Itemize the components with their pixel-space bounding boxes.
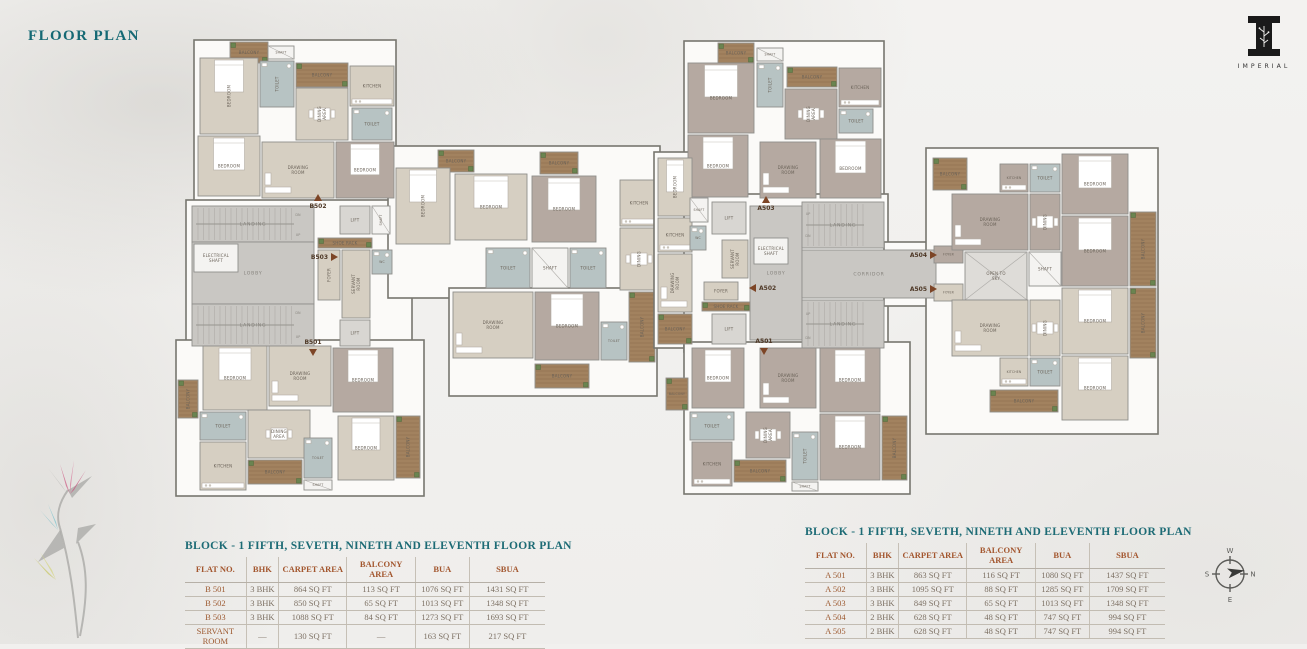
table-cell: —: [246, 625, 278, 649]
room-landing: LANDING: [802, 300, 884, 348]
room-drawing-room: DRAWINGROOM: [658, 254, 692, 312]
svg-text:LIFT: LIFT: [725, 215, 734, 220]
svg-text:TOILET: TOILET: [1036, 175, 1053, 180]
svg-text:SHOE RACK: SHOE RACK: [714, 304, 739, 309]
svg-text:TOILET: TOILET: [579, 265, 596, 270]
table-cell: B 501: [185, 583, 246, 597]
room-drawing-room: DRAWINGROOM: [952, 300, 1028, 356]
svg-text:FOYER: FOYER: [714, 288, 728, 293]
table-cell: 3 BHK: [246, 597, 278, 611]
room-kitchen: KITCHEN: [620, 180, 658, 226]
table-cell: 1285 SQ FT: [1035, 583, 1089, 597]
room-bedroom: BEDROOM: [535, 292, 599, 360]
svg-text:SHOE RACK: SHOE RACK: [333, 240, 358, 245]
svg-text:BEDROOM: BEDROOM: [1084, 318, 1107, 323]
table-cell: 1080 SQ FT: [1035, 569, 1089, 583]
table-header-cell: BHK: [246, 557, 278, 583]
room-bedroom: BEDROOM: [333, 348, 393, 412]
compass-s: S: [1205, 571, 1210, 579]
svg-text:DININGAREA: DININGAREA: [806, 106, 816, 122]
svg-text:BEDROOM: BEDROOM: [1084, 248, 1107, 253]
svg-text:B501: B501: [304, 339, 321, 346]
room-electrical-shaft: ELECTRICALSHAFT: [194, 244, 238, 272]
svg-text:KITCHEN: KITCHEN: [214, 463, 233, 468]
room-toilet: TOILET: [601, 322, 627, 360]
svg-text:DINING: DINING: [1042, 214, 1047, 230]
room-balcony: BALCONY: [248, 460, 302, 484]
svg-text:B503: B503: [311, 254, 328, 261]
room-bedroom: BEDROOM: [692, 348, 744, 408]
svg-text:LANDING: LANDING: [830, 223, 857, 229]
svg-text:TOILET: TOILET: [214, 423, 231, 428]
tower-a-table-title: BLOCK - 1 FIFTH, SEVETH, NINETH AND ELEV…: [805, 526, 1165, 538]
room-kitchen: KITCHEN: [839, 68, 881, 107]
room-balcony: BALCONY: [882, 416, 907, 480]
room-bedroom: BEDROOM: [203, 346, 267, 410]
svg-text:BEDROOM: BEDROOM: [707, 375, 730, 380]
compass: W N S E: [1198, 542, 1262, 611]
svg-text:DININGAREA: DININGAREA: [317, 106, 327, 122]
svg-text:CORRIDOR: CORRIDOR: [853, 272, 884, 278]
svg-text:LOBBY: LOBBY: [244, 271, 263, 277]
room-bedroom: BEDROOM: [688, 135, 748, 197]
table-cell: 2 BHK: [866, 611, 898, 625]
table-header-cell: SBUA: [1089, 543, 1165, 569]
svg-text:UP: UP: [296, 335, 301, 339]
svg-text:BEDROOM: BEDROOM: [672, 176, 677, 199]
table-cell: 88 SQ FT: [967, 583, 1035, 597]
room-shaft: SHAFT: [532, 248, 568, 288]
room-dining-area: DININGAREA: [248, 410, 310, 458]
imperial-logo: IMPERIAL: [1222, 10, 1306, 79]
table-cell: 1348 SQ FT: [1089, 597, 1165, 611]
table-header-cell: BUA: [1035, 543, 1089, 569]
room-shoe-rack: SHOE RACK: [702, 302, 750, 311]
compass-e: E: [1228, 596, 1232, 604]
table-row: B 5023 BHK850 SQ FT65 SQ FT1013 SQ FT134…: [185, 597, 545, 611]
room-toilet: TOILET: [352, 108, 392, 140]
svg-text:BALCONY: BALCONY: [665, 326, 686, 331]
tower-b-area-table: FLAT NO.BHKCARPET AREABALCONY AREABUASBU…: [185, 557, 545, 649]
svg-text:SHAFT: SHAFT: [543, 265, 557, 270]
svg-text:TOILET: TOILET: [703, 423, 720, 428]
table-header-cell: BHK: [866, 543, 898, 569]
table-cell: 849 SQ FT: [899, 597, 967, 611]
room-shaft: SHAFT: [792, 482, 818, 491]
table-cell: 994 SQ FT: [1089, 611, 1165, 625]
table-cell: 163 SQ FT: [415, 625, 469, 649]
svg-text:DN: DN: [295, 311, 301, 315]
room-shaft: SHAFT: [757, 48, 783, 61]
svg-text:DINING: DINING: [1042, 320, 1047, 336]
svg-text:BEDROOM: BEDROOM: [352, 377, 375, 382]
table-header-cell: CARPET AREA: [899, 543, 967, 569]
tower-a-plan: BALCONYBEDROOMSHAFTTOILETBALCONYKITCHEND…: [654, 41, 1158, 494]
svg-text:BEDROOM: BEDROOM: [1084, 181, 1107, 186]
svg-text:BEDROOM: BEDROOM: [839, 166, 862, 171]
room-kitchen: KITCHEN: [1000, 164, 1028, 192]
svg-text:WC: WC: [695, 236, 701, 240]
room-kitchen: KITCHEN: [658, 218, 692, 252]
room-kitchen: KITCHEN: [1000, 358, 1028, 386]
table-row: A 5033 BHK849 SQ FT65 SQ FT1013 SQ FT134…: [805, 597, 1165, 611]
svg-text:LIFT: LIFT: [351, 330, 360, 335]
room-balcony: BALCONY: [296, 63, 348, 87]
room-toilet: TOILET: [304, 438, 332, 478]
svg-text:SHAFT: SHAFT: [312, 483, 323, 487]
room-bedroom: BEDROOM: [820, 414, 880, 480]
room-balcony: BALCONY: [629, 292, 655, 362]
svg-text:TOILET: TOILET: [499, 265, 516, 270]
table-cell: A 505: [805, 625, 866, 639]
table-cell: 48 SQ FT: [967, 625, 1035, 639]
svg-text:TOILET: TOILET: [274, 76, 279, 93]
svg-text:BALCONY: BALCONY: [802, 74, 823, 79]
room-bedroom: BEDROOM: [455, 174, 527, 240]
svg-text:BEDROOM: BEDROOM: [707, 163, 730, 168]
room-bedroom: BEDROOM: [658, 158, 692, 216]
room-kitchen: KITCHEN: [692, 442, 732, 486]
svg-text:BEDROOM: BEDROOM: [710, 95, 733, 100]
room-toilet: TOILET: [1030, 164, 1060, 192]
table-cell: 1693 SQ FT: [469, 611, 545, 625]
room-balcony: BALCONY: [658, 314, 692, 344]
svg-text:BALCONY: BALCONY: [552, 373, 573, 378]
table-cell: 1076 SQ FT: [415, 583, 469, 597]
svg-text:TOILET: TOILET: [847, 118, 864, 123]
table-cell: 1431 SQ FT: [469, 583, 545, 597]
table-cell: B 502: [185, 597, 246, 611]
svg-text:TOILET: TOILET: [767, 77, 772, 94]
room-electrical-shaft: ELECTRICALSHAFT: [754, 238, 788, 264]
svg-text:SHAFT: SHAFT: [799, 485, 810, 489]
svg-text:BALCONY: BALCONY: [1140, 312, 1145, 333]
svg-text:LANDING: LANDING: [240, 323, 267, 329]
table-cell: 1095 SQ FT: [899, 583, 967, 597]
svg-text:BALCONY: BALCONY: [265, 469, 286, 474]
svg-text:BEDROOM: BEDROOM: [420, 195, 425, 218]
room-dining: DINING: [1030, 194, 1060, 250]
room-bedroom: BEDROOM: [1062, 154, 1128, 214]
svg-text:LOBBY: LOBBY: [767, 271, 786, 277]
room-toilet: TOILET: [690, 412, 734, 440]
svg-text:BEDROOM: BEDROOM: [480, 204, 503, 209]
room-drawing-room: DRAWINGROOM: [269, 346, 331, 406]
room-balcony: BALCONY: [933, 158, 967, 190]
svg-text:DN: DN: [805, 234, 811, 238]
svg-text:UP: UP: [296, 233, 301, 237]
svg-text:BALCONY: BALCONY: [312, 72, 333, 77]
room-foyer: FOYER: [934, 284, 963, 301]
table-cell: 3 BHK: [246, 611, 278, 625]
svg-text:LANDING: LANDING: [830, 322, 857, 328]
room-dining: DINING: [1030, 300, 1060, 356]
table-cell: 84 SQ FT: [347, 611, 415, 625]
svg-text:TOILET: TOILET: [363, 121, 380, 126]
table-cell: 2 BHK: [866, 625, 898, 639]
room-toilet: TOILET: [486, 248, 530, 288]
svg-text:BALCONY: BALCONY: [639, 316, 644, 337]
room-dining-area: DININGAREA: [296, 88, 348, 140]
table-cell: A 502: [805, 583, 866, 597]
tower-a-area-table: FLAT NO.BHKCARPET AREABALCONY AREABUASBU…: [805, 543, 1165, 639]
svg-text:BEDROOM: BEDROOM: [224, 375, 247, 380]
room-lift: LIFT: [712, 202, 746, 234]
svg-text:BALCONY: BALCONY: [1140, 238, 1145, 259]
svg-text:SHAFT: SHAFT: [275, 51, 286, 55]
compass-n: N: [1250, 571, 1255, 579]
table-header-row: FLAT NO.BHKCARPET AREABALCONY AREABUASBU…: [185, 557, 545, 583]
flower-illustration: [8, 446, 138, 647]
room-shaft: SHAFT: [372, 206, 390, 234]
table-row: B 5013 BHK864 SQ FT113 SQ FT1076 SQ FT14…: [185, 583, 545, 597]
table-row: A 5042 BHK628 SQ FT48 SQ FT747 SQ FT994 …: [805, 611, 1165, 625]
room-balcony: BALCONY: [666, 378, 688, 410]
room-shaft: SHAFT: [268, 46, 294, 59]
table-cell: 130 SQ FT: [279, 625, 347, 649]
table-cell: 850 SQ FT: [279, 597, 347, 611]
svg-text:A502: A502: [759, 285, 776, 292]
table-cell: A 504: [805, 611, 866, 625]
tower-b-table-title: BLOCK - 1 FIFTH, SEVETH, NINETH AND ELEV…: [185, 540, 545, 552]
room-balcony: BALCONY: [718, 43, 754, 63]
svg-text:BEDROOM: BEDROOM: [226, 85, 231, 108]
svg-text:LANDING: LANDING: [240, 222, 267, 228]
svg-text:UP: UP: [806, 212, 811, 216]
room-bedroom: BEDROOM: [200, 58, 258, 134]
room-kitchen: KITCHEN: [350, 66, 394, 106]
room-balcony: BALCONY: [787, 67, 837, 87]
table-cell: 3 BHK: [246, 583, 278, 597]
svg-text:DININGAREA: DININGAREA: [763, 427, 773, 443]
room-balcony: BALCONY: [1130, 212, 1156, 286]
svg-text:TOILET: TOILET: [607, 339, 620, 343]
table-cell: —: [347, 625, 415, 649]
svg-text:KITCHEN: KITCHEN: [666, 232, 685, 237]
tower-b-plan: BALCONYBEDROOMSHAFTTOILETBALCONYKITCHENT…: [176, 40, 660, 496]
svg-text:BALCONY: BALCONY: [405, 436, 410, 457]
room-balcony: BALCONY: [540, 152, 578, 174]
svg-text:DN: DN: [295, 213, 301, 217]
svg-text:BALCONY: BALCONY: [446, 158, 467, 163]
svg-text:BALCONY: BALCONY: [750, 468, 771, 473]
table-header-cell: FLAT NO.: [185, 557, 246, 583]
table-header-cell: BUA: [415, 557, 469, 583]
room-toilet: TOILET: [1030, 358, 1060, 386]
room-balcony: BALCONY: [734, 460, 786, 482]
table-cell: 3 BHK: [866, 597, 898, 611]
table-cell: 1088 SQ FT: [279, 611, 347, 625]
table-cell: 1709 SQ FT: [1089, 583, 1165, 597]
table-cell: 116 SQ FT: [967, 569, 1035, 583]
table-header-cell: FLAT NO.: [805, 543, 866, 569]
table-cell: A 501: [805, 569, 866, 583]
room-drawing-room: DRAWINGROOM: [760, 142, 816, 198]
svg-text:BEDROOM: BEDROOM: [354, 167, 377, 172]
room-foyer: FOYER: [704, 282, 738, 300]
page-title: FLOOR PLAN: [28, 28, 140, 45]
room-open-to-sky: OPEN TOSKY: [965, 252, 1027, 300]
table-cell: 628 SQ FT: [899, 625, 967, 639]
room-landing: LANDING: [802, 202, 884, 248]
table-header-cell: SBUA: [469, 557, 545, 583]
table-header-cell: CARPET AREA: [279, 557, 347, 583]
svg-text:WC: WC: [379, 260, 385, 264]
room-toilet: TOILET: [839, 109, 873, 133]
room-balcony: BALCONY: [990, 390, 1058, 412]
svg-text:LIFT: LIFT: [725, 326, 734, 331]
svg-text:BALCONY: BALCONY: [726, 50, 747, 55]
room-bedroom: BEDROOM: [336, 142, 394, 198]
svg-text:UP: UP: [806, 312, 811, 316]
table-cell: 747 SQ FT: [1035, 611, 1089, 625]
svg-text:TOILET: TOILET: [1036, 369, 1053, 374]
room-bedroom: BEDROOM: [198, 136, 260, 196]
svg-text:BEDROOM: BEDROOM: [553, 206, 576, 211]
room-drawing-room: DRAWINGROOM: [760, 348, 816, 408]
table-cell: 1013 SQ FT: [1035, 597, 1089, 611]
table-cell: 1013 SQ FT: [415, 597, 469, 611]
room-toilet: TOILET: [792, 432, 818, 480]
room-toilet: TOILET: [757, 63, 783, 107]
svg-text:FOYER: FOYER: [326, 268, 331, 282]
room-lift: LIFT: [340, 320, 370, 346]
svg-text:SHAFT: SHAFT: [379, 214, 383, 225]
table-cell: 1273 SQ FT: [415, 611, 469, 625]
room-bedroom: BEDROOM: [532, 176, 596, 242]
room-toilet: TOILET: [200, 412, 246, 440]
room-lift: LIFT: [712, 314, 746, 344]
table-cell: 217 SQ FT: [469, 625, 545, 649]
room-lobby: LOBBY: [750, 206, 802, 340]
room-wc: WC: [372, 250, 392, 274]
svg-text:BALCONY: BALCONY: [239, 50, 260, 55]
room-bedroom: BEDROOM: [396, 168, 450, 244]
svg-text:A504: A504: [910, 252, 927, 259]
compass-w: W: [1227, 547, 1234, 555]
room-servant-room: SERVANTROOM: [722, 240, 748, 278]
room-bedroom: BEDROOM: [338, 416, 394, 480]
room-toilet: TOILET: [570, 248, 606, 288]
svg-text:TOILET: TOILET: [802, 448, 807, 465]
svg-text:KITCHEN: KITCHEN: [630, 200, 649, 205]
table-cell: 747 SQ FT: [1035, 625, 1089, 639]
room-bedroom: BEDROOM: [1062, 356, 1128, 420]
svg-text:B502: B502: [309, 203, 326, 210]
svg-text:BEDROOM: BEDROOM: [355, 445, 378, 450]
table-cell: B 503: [185, 611, 246, 625]
brand-name: IMPERIAL: [1238, 63, 1291, 70]
room-shaft: SHAFT: [304, 480, 332, 490]
svg-text:BALCONY: BALCONY: [669, 392, 685, 396]
room-shaft: SHAFT: [1029, 252, 1061, 286]
room-bedroom: BEDROOM: [820, 139, 881, 198]
room-bedroom: BEDROOM: [1062, 216, 1128, 286]
room-toilet: TOILET: [260, 61, 294, 107]
table-row: A 5052 BHK628 SQ FT48 SQ FT747 SQ FT994 …: [805, 625, 1165, 639]
svg-text:A505: A505: [910, 286, 927, 293]
room-drawing-room: DRAWINGROOM: [453, 292, 533, 358]
svg-text:TOILET: TOILET: [311, 456, 324, 460]
svg-text:DN: DN: [805, 336, 811, 340]
svg-text:A503: A503: [757, 205, 774, 212]
svg-text:DININGAREA: DININGAREA: [271, 429, 287, 439]
svg-text:BEDROOM: BEDROOM: [1084, 385, 1107, 390]
room-drawing-room: DRAWINGROOM: [262, 142, 334, 198]
room-balcony: BALCONY: [178, 380, 198, 418]
table-cell: 48 SQ FT: [967, 611, 1035, 625]
table-cell: 628 SQ FT: [899, 611, 967, 625]
room-bedroom: BEDROOM: [688, 63, 754, 133]
table-cell: 863 SQ FT: [899, 569, 967, 583]
table-row: B 5033 BHK1088 SQ FT84 SQ FT1273 SQ FT16…: [185, 611, 545, 625]
room-dining: DINING: [620, 228, 658, 290]
svg-text:BEDROOM: BEDROOM: [839, 444, 862, 449]
svg-text:BEDROOM: BEDROOM: [218, 163, 241, 168]
svg-text:KITCHEN: KITCHEN: [703, 461, 722, 466]
table-header-cell: BALCONY AREA: [967, 543, 1035, 569]
svg-text:BALCONY: BALCONY: [892, 437, 897, 458]
svg-text:BALCONY: BALCONY: [940, 171, 961, 176]
room-dining-area: DININGAREA: [785, 89, 837, 139]
svg-text:KITCHEN: KITCHEN: [1007, 370, 1022, 374]
svg-text:LIFT: LIFT: [351, 217, 360, 222]
svg-text:KITCHEN: KITCHEN: [1007, 176, 1022, 180]
svg-text:KITCHEN: KITCHEN: [851, 85, 870, 90]
table-cell: 3 BHK: [866, 569, 898, 583]
svg-text:SHAFT: SHAFT: [693, 208, 704, 212]
tower-b-table: BLOCK - 1 FIFTH, SEVETH, NINETH AND ELEV…: [185, 540, 545, 649]
table-cell: 1348 SQ FT: [469, 597, 545, 611]
compass-ticks-icon: [1212, 556, 1248, 592]
svg-text:DINING: DINING: [636, 251, 641, 267]
room-bedroom: BEDROOM: [1062, 288, 1128, 354]
room-wc: WC: [690, 226, 706, 250]
table-row: A 5023 BHK1095 SQ FT88 SQ FT1285 SQ FT17…: [805, 583, 1165, 597]
svg-text:BEDROOM: BEDROOM: [556, 323, 579, 328]
room-lift: LIFT: [340, 206, 370, 234]
room-balcony: BALCONY: [396, 416, 420, 478]
room-bedroom: BEDROOM: [820, 348, 880, 412]
table-cell: 864 SQ FT: [279, 583, 347, 597]
svg-text:KITCHEN: KITCHEN: [363, 83, 382, 88]
room-drawing-room: DRAWINGROOM: [952, 194, 1028, 250]
room-dining-area: DININGAREA: [746, 412, 790, 458]
svg-text:BALCONY: BALCONY: [1014, 398, 1035, 403]
svg-text:FOYER: FOYER: [943, 291, 955, 295]
table-header-cell: BALCONY AREA: [347, 557, 415, 583]
table-cell: SERVANT ROOM: [185, 625, 246, 649]
table-cell: 113 SQ FT: [347, 583, 415, 597]
table-cell: 1437 SQ FT: [1089, 569, 1165, 583]
svg-text:BALCONY: BALCONY: [185, 388, 190, 409]
table-header-row: FLAT NO.BHKCARPET AREABALCONY AREABUASBU…: [805, 543, 1165, 569]
table-cell: 994 SQ FT: [1089, 625, 1165, 639]
tower-a-table: BLOCK - 1 FIFTH, SEVETH, NINETH AND ELEV…: [805, 526, 1165, 639]
table-cell: 65 SQ FT: [967, 597, 1035, 611]
room-balcony: BALCONY: [535, 364, 589, 388]
svg-text:BEDROOM: BEDROOM: [839, 377, 862, 382]
room-shoe-rack: SHOE RACK: [318, 238, 372, 248]
table-cell: 3 BHK: [866, 583, 898, 597]
svg-text:BALCONY: BALCONY: [549, 160, 570, 165]
room-kitchen: KITCHEN: [200, 442, 246, 490]
table-cell: A 503: [805, 597, 866, 611]
floor-plan-page: { "page": {"title": "FLOOR PLAN", "brand…: [0, 0, 1307, 644]
svg-text:SHAFT: SHAFT: [764, 53, 775, 57]
imperial-monogram-icon: IMPERIAL: [1222, 10, 1306, 74]
table-cell: 65 SQ FT: [347, 597, 415, 611]
